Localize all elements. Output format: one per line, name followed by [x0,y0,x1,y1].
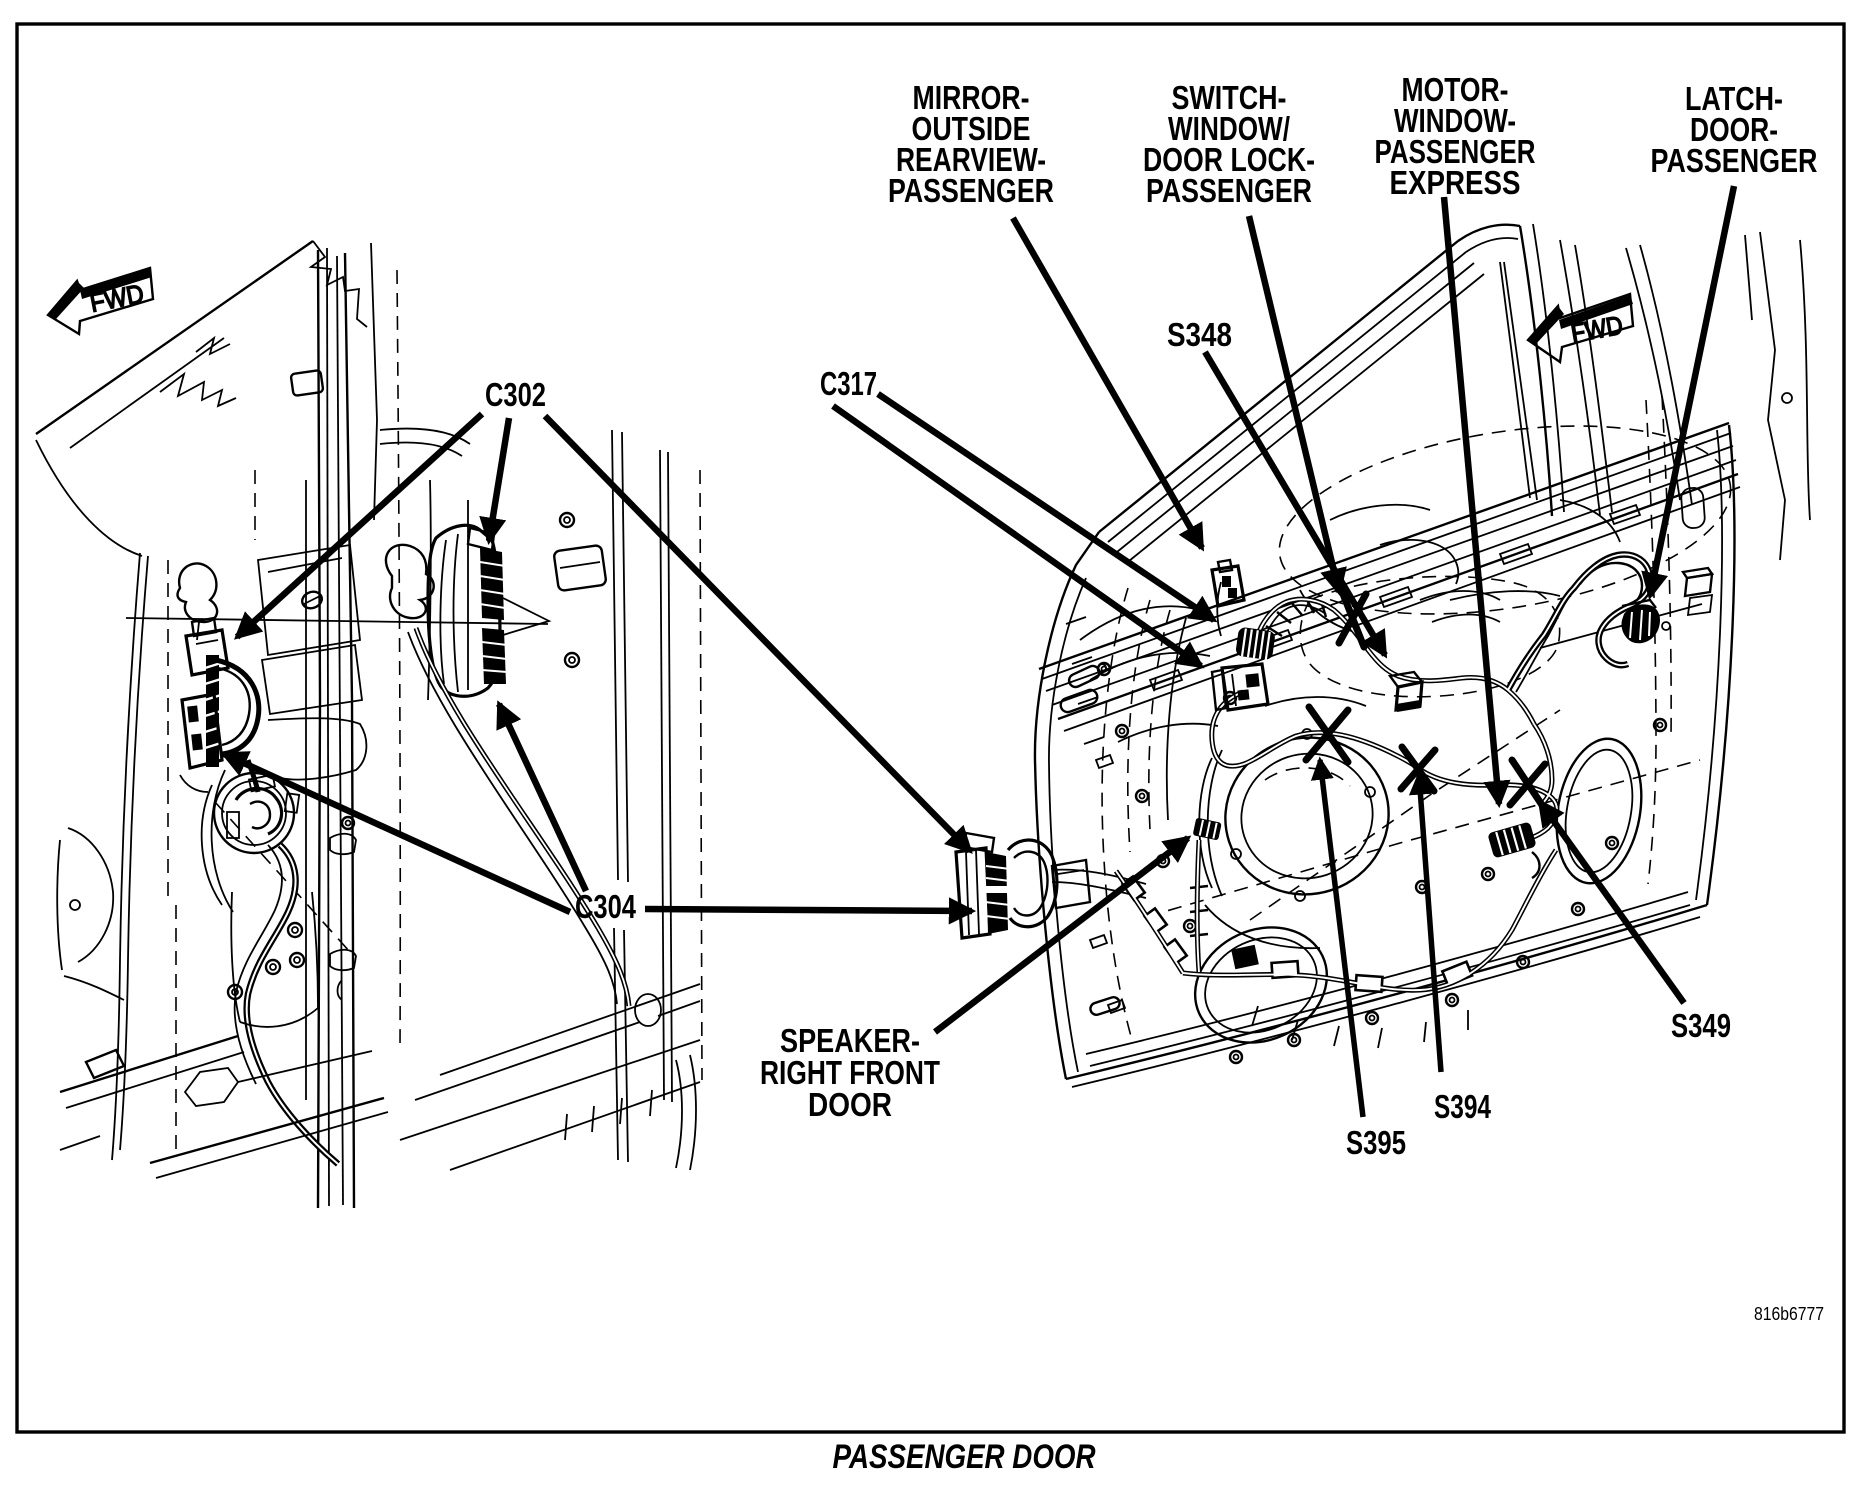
svg-text:816b6777: 816b6777 [1754,1304,1824,1324]
svg-text:PASSENGER: PASSENGER [1651,142,1818,179]
svg-text:S349: S349 [1671,1007,1731,1044]
svg-text:C304: C304 [575,888,637,925]
svg-text:PASSENGER DOOR: PASSENGER DOOR [833,1438,1096,1476]
svg-text:PASSENGER: PASSENGER [1146,172,1312,209]
svg-text:S394: S394 [1434,1088,1491,1125]
svg-text:S348: S348 [1167,316,1232,353]
svg-text:EXPRESS: EXPRESS [1390,164,1521,201]
svg-text:S395: S395 [1346,1124,1406,1161]
svg-text:PASSENGER: PASSENGER [888,172,1054,209]
svg-text:C302: C302 [485,376,546,413]
svg-text:DOOR: DOOR [808,1086,892,1123]
svg-text:C317: C317 [820,365,877,402]
